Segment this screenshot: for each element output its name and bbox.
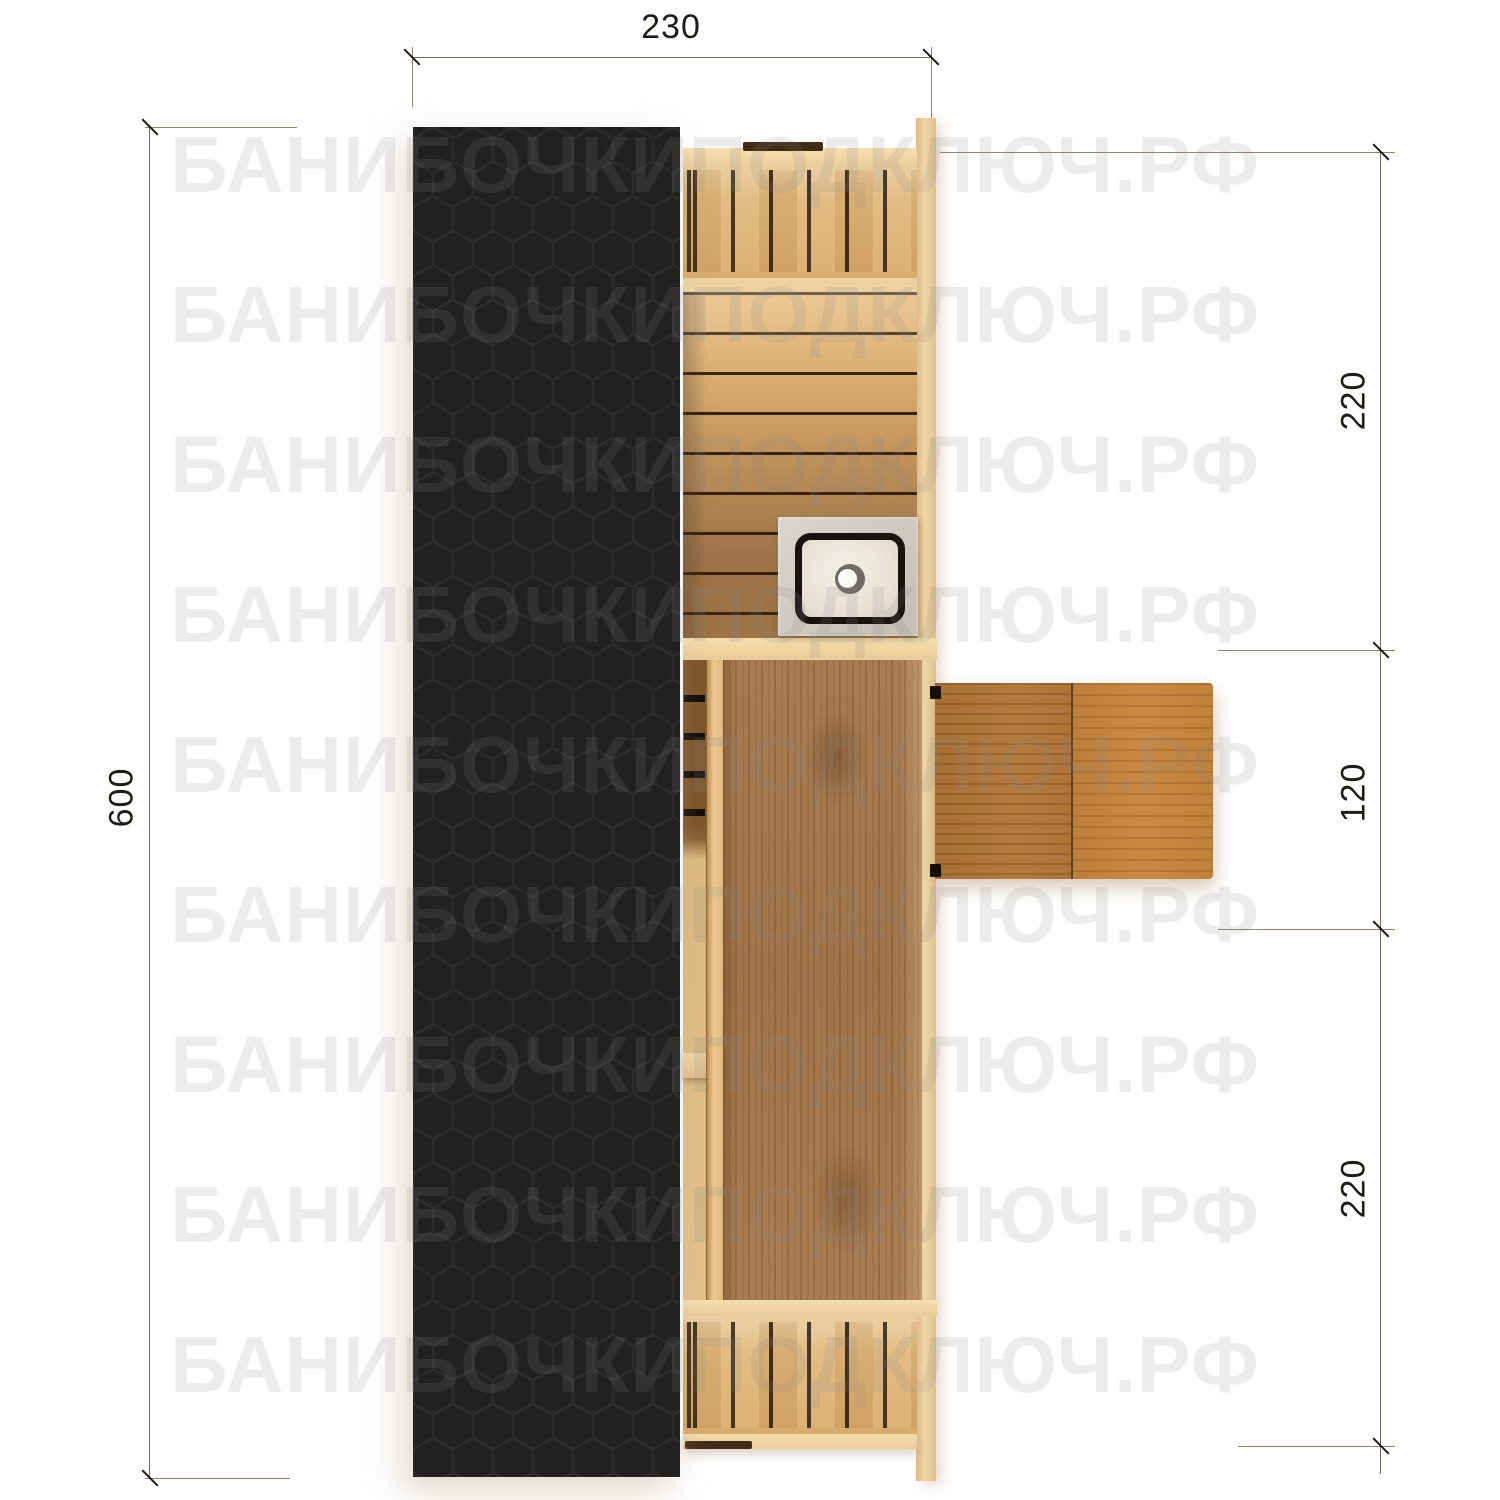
dimension-label-segment-2: 120 (1335, 733, 1374, 853)
roof-hex-shingle-pattern (413, 127, 680, 1477)
terrace-deck-boards-top (683, 164, 917, 278)
bottom-wall-beam (683, 1300, 937, 1316)
interior-door-post (706, 660, 723, 1302)
table-half-left (935, 683, 1073, 879)
sink-basin (795, 533, 905, 624)
sink-unit (778, 517, 918, 636)
floor-plan-canvas: 230 600 220 120 220 БАНИБОЧКИПОДКЛЮЧ.РФ … (0, 0, 1500, 1500)
interior-left-wall (683, 660, 722, 1302)
table-hinge-bottom (930, 864, 941, 877)
wall-slat-gap (684, 695, 705, 702)
dimension-label-width: 230 (611, 8, 731, 47)
deck-board-gaps (683, 170, 917, 272)
dimension-label-segment-3: 220 (1335, 1129, 1374, 1249)
fold-out-table (935, 683, 1213, 879)
deck-board-gaps (683, 1322, 917, 1428)
extension-line-right-2 (1218, 650, 1395, 651)
extension-line-right-1 (940, 152, 1395, 153)
dimension-label-segment-1: 220 (1335, 341, 1374, 461)
terrace-deck-boards-bottom (683, 1316, 917, 1434)
extension-line-right-4 (1238, 1446, 1395, 1447)
partition-wall-beam (683, 638, 937, 660)
wall-slat-gap (684, 809, 705, 816)
sink-drain-hole (838, 569, 857, 588)
table-half-right (1073, 683, 1213, 879)
dimension-line-left (149, 127, 150, 1478)
dimension-line-right (1380, 152, 1381, 1474)
dimension-label-length: 600 (103, 738, 142, 858)
interior-floor (722, 660, 922, 1302)
extension-line-left-bottom (145, 1478, 290, 1479)
entry-step-top (743, 142, 823, 151)
dimension-line-top (412, 57, 931, 58)
sink-drain (835, 564, 865, 594)
wall-slat-gap (684, 771, 705, 778)
wall-slat-gap (684, 733, 705, 740)
entry-step-bottom (685, 1441, 752, 1449)
table-hinge-top (930, 686, 941, 699)
extension-line-right-3 (1218, 929, 1395, 930)
extension-line-left-top (145, 127, 297, 128)
roof-panel (413, 127, 680, 1477)
terrace-cross-band (683, 278, 917, 292)
